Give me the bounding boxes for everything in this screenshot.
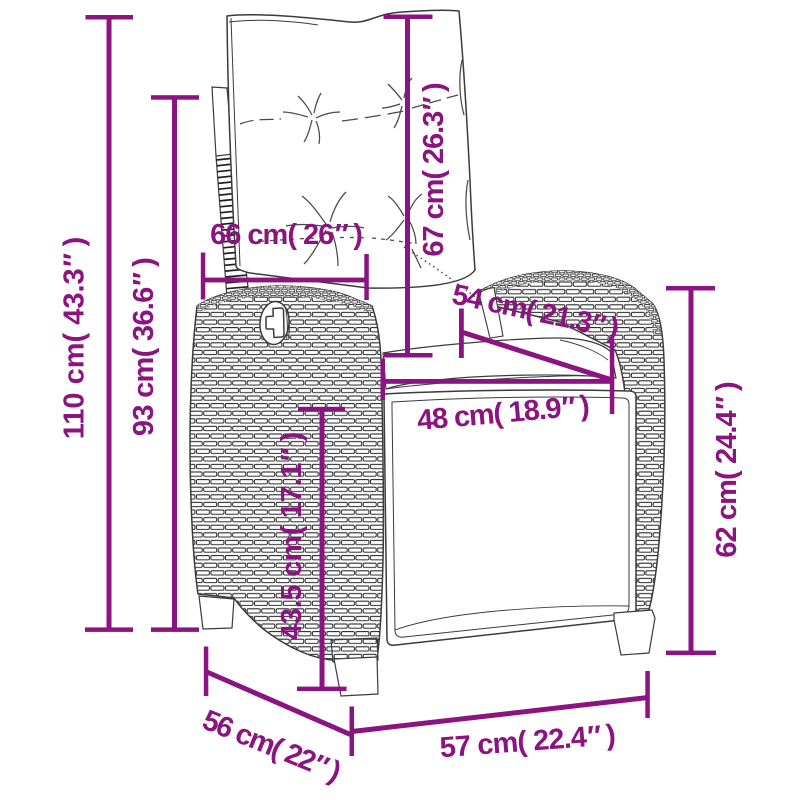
svg-text:110 cm( 43.3″ ): 110 cm( 43.3″ ) (59, 237, 91, 440)
svg-text:43.5 cm( 17.1″ ): 43.5 cm( 17.1″ ) (276, 432, 308, 640)
svg-text:57 cm( 22.4″ ): 57 cm( 22.4″ ) (439, 719, 617, 764)
svg-text:67 cm( 26.3″ ): 67 cm( 26.3″ ) (418, 83, 450, 257)
svg-text:56 cm( 22″ ): 56 cm( 22″ ) (198, 704, 345, 788)
svg-text:62 cm( 24.4″ ): 62 cm( 24.4″ ) (711, 382, 743, 558)
svg-text:93 cm( 36.6″ ): 93 cm( 36.6″ ) (128, 258, 160, 436)
svg-text:66 cm( 26″ ): 66 cm( 26″ ) (210, 219, 362, 251)
